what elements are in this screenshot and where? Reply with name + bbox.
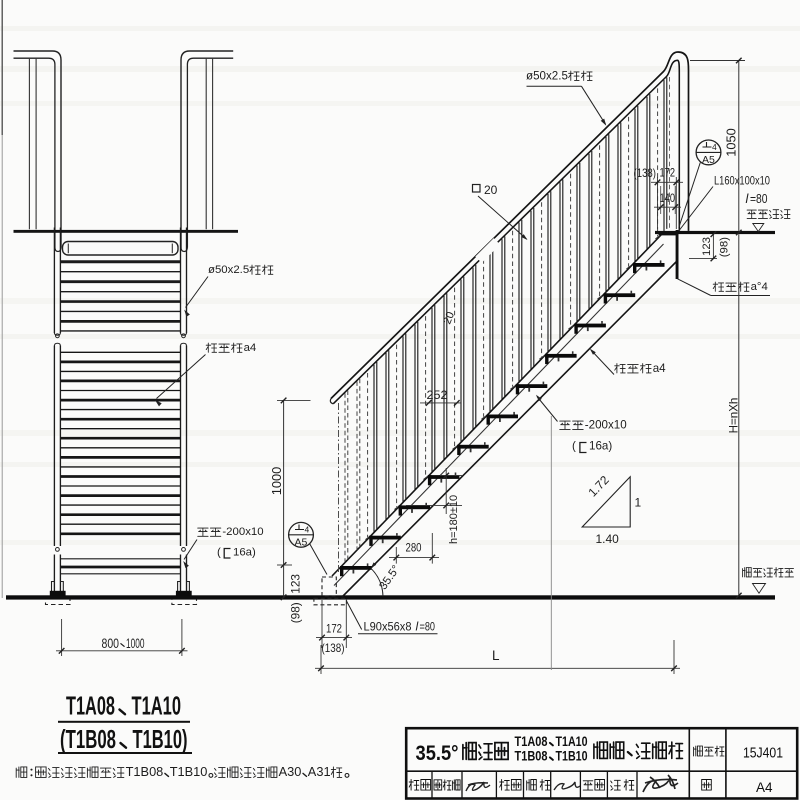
svg-text:T1B08: T1B08 xyxy=(515,749,548,764)
svg-text:172: 172 xyxy=(660,166,676,180)
svg-text:800: 800 xyxy=(102,636,120,651)
svg-text:T1B10): T1B10) xyxy=(133,724,188,754)
svg-text:ø50x2.5: ø50x2.5 xyxy=(526,69,568,82)
svg-text:4: 4 xyxy=(305,525,310,535)
svg-text:140: 140 xyxy=(660,191,676,205)
svg-text:16a): 16a) xyxy=(589,439,612,452)
svg-text:A30: A30 xyxy=(279,764,302,779)
svg-text:1.40: 1.40 xyxy=(596,532,620,546)
svg-text:1050: 1050 xyxy=(724,128,739,156)
svg-text:1000: 1000 xyxy=(126,636,145,651)
svg-text:4: 4 xyxy=(712,142,717,152)
svg-text:T1A08: T1A08 xyxy=(66,691,115,721)
svg-text:T1B10: T1B10 xyxy=(170,764,208,779)
svg-text:T1A10: T1A10 xyxy=(132,691,182,721)
svg-text:35.5°: 35.5° xyxy=(416,741,459,765)
svg-text:A31: A31 xyxy=(308,764,331,779)
svg-text:a4: a4 xyxy=(653,362,666,375)
svg-text:T1A08: T1A08 xyxy=(515,734,548,749)
svg-text:1000: 1000 xyxy=(269,467,284,495)
svg-text:=80: =80 xyxy=(420,620,436,634)
svg-text:(98): (98) xyxy=(289,602,303,623)
svg-text:A5: A5 xyxy=(702,154,715,166)
svg-text:252: 252 xyxy=(427,388,448,402)
svg-text:-200x10: -200x10 xyxy=(222,526,263,538)
svg-text:L90x56x8: L90x56x8 xyxy=(364,620,412,634)
svg-text:1: 1 xyxy=(635,496,642,510)
svg-text:(138): (138) xyxy=(322,641,345,655)
svg-text:H=nXh: H=nXh xyxy=(727,398,740,434)
svg-text:a4: a4 xyxy=(244,342,257,354)
svg-text:123: 123 xyxy=(289,574,303,594)
svg-text:(T1B08: (T1B08 xyxy=(60,724,116,754)
svg-text:ø50x2.5: ø50x2.5 xyxy=(208,264,249,276)
svg-text:15J401: 15J401 xyxy=(743,746,783,762)
svg-text:l: l xyxy=(416,620,419,634)
svg-text:20: 20 xyxy=(484,183,498,197)
svg-text:123: 123 xyxy=(701,237,713,256)
svg-text:(98): (98) xyxy=(719,237,731,257)
svg-text:T1B10: T1B10 xyxy=(556,749,588,764)
svg-text:L: L xyxy=(492,648,500,663)
svg-text:172: 172 xyxy=(326,622,342,636)
svg-text:A4: A4 xyxy=(756,780,773,795)
svg-text:(138): (138) xyxy=(634,166,657,180)
svg-text:a°4: a°4 xyxy=(751,281,768,293)
svg-text:h=180±10: h=180±10 xyxy=(448,495,460,544)
svg-text:280: 280 xyxy=(406,541,422,555)
svg-text:T1A10: T1A10 xyxy=(556,734,588,749)
svg-text:L160x100x10: L160x100x10 xyxy=(714,174,770,188)
svg-text:=80: =80 xyxy=(750,192,768,206)
svg-text:(: ( xyxy=(217,547,221,559)
svg-text:16a): 16a) xyxy=(233,547,256,559)
svg-text:T1B08: T1B08 xyxy=(126,764,164,779)
svg-text:-200x10: -200x10 xyxy=(585,418,627,431)
svg-text:(: ( xyxy=(572,439,576,452)
svg-text:A5: A5 xyxy=(295,537,308,549)
